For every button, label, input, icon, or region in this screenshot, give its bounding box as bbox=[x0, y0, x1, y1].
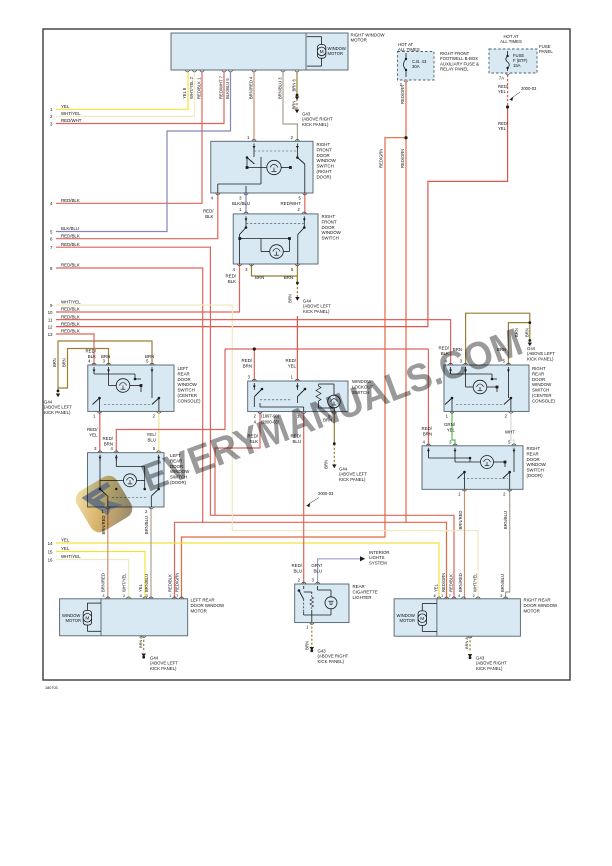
svg-text:SWITCH: SWITCH bbox=[532, 388, 549, 393]
svg-text:REAR: REAR bbox=[532, 371, 544, 376]
svg-text:KICK PANEL): KICK PANEL) bbox=[339, 477, 366, 482]
svg-text:15: 15 bbox=[48, 549, 53, 554]
svg-text:BRN: BRN bbox=[291, 101, 296, 110]
svg-text:RED/GRN: RED/GRN bbox=[400, 85, 405, 104]
svg-text:YEL: YEL bbox=[433, 583, 438, 592]
svg-text:KICK PANEL): KICK PANEL) bbox=[44, 410, 71, 415]
svg-text:RIGHT: RIGHT bbox=[532, 366, 546, 371]
svg-text:YEL 8: YEL 8 bbox=[182, 87, 187, 99]
svg-text:FRONT: FRONT bbox=[317, 147, 332, 152]
svg-text:YEL: YEL bbox=[89, 433, 98, 438]
svg-text:DOOR: DOOR bbox=[317, 153, 330, 158]
svg-text:WHT/YEL: WHT/YEL bbox=[61, 300, 81, 305]
svg-text:WINDOW: WINDOW bbox=[317, 158, 337, 163]
svg-text:SWITCH: SWITCH bbox=[178, 388, 195, 393]
svg-text:MOTOR: MOTOR bbox=[66, 618, 82, 623]
svg-text:REAR: REAR bbox=[353, 584, 365, 589]
svg-text:BRN/BLU: BRN/BLU bbox=[500, 574, 505, 592]
svg-text:RED/GRN: RED/GRN bbox=[400, 149, 405, 168]
svg-text:DOOR WINDOW: DOOR WINDOW bbox=[191, 603, 226, 608]
svg-text:RED/BLK: RED/BLK bbox=[61, 307, 80, 312]
svg-text:RED/WHT: RED/WHT bbox=[281, 201, 302, 206]
svg-text:WINDOW: WINDOW bbox=[178, 382, 198, 387]
svg-text:RED/WHT: RED/WHT bbox=[61, 118, 82, 123]
svg-text:RED/: RED/ bbox=[286, 358, 297, 363]
svg-text:CIGARETTE: CIGARETTE bbox=[353, 589, 378, 594]
svg-text:RED/BLK: RED/BLK bbox=[448, 574, 453, 592]
svg-text:10: 10 bbox=[48, 310, 53, 315]
svg-text:YEL: YEL bbox=[447, 428, 456, 433]
svg-text:KICK PANEL): KICK PANEL) bbox=[302, 122, 329, 127]
svg-text:BLK/BLU: BLK/BLU bbox=[61, 226, 79, 231]
svg-text:M: M bbox=[320, 49, 324, 55]
svg-text:BLU: BLU bbox=[313, 569, 322, 574]
svg-text:RED/BLK: RED/BLK bbox=[61, 242, 80, 247]
svg-text:BRN: BRN bbox=[62, 358, 67, 367]
svg-text:GRY/: GRY/ bbox=[311, 563, 322, 568]
svg-text:2000-03: 2000-03 bbox=[318, 491, 334, 496]
svg-text:DOOR: DOOR bbox=[322, 225, 335, 230]
svg-text:(CENTER: (CENTER bbox=[532, 393, 552, 398]
svg-text:BRN: BRN bbox=[423, 432, 432, 437]
svg-text:BLK/BLU 5: BLK/BLU 5 bbox=[225, 78, 230, 99]
svg-text:RIGHT: RIGHT bbox=[527, 446, 541, 451]
svg-text:RED/: RED/ bbox=[86, 349, 97, 354]
svg-text:GRN/: GRN/ bbox=[444, 422, 456, 427]
svg-text:BRN/RED 4: BRN/RED 4 bbox=[248, 76, 253, 99]
svg-text:7A: 7A bbox=[499, 76, 504, 81]
svg-text:FRONT: FRONT bbox=[322, 219, 337, 224]
svg-text:BRN 8: BRN 8 bbox=[464, 636, 469, 649]
svg-text:DOOR): DOOR) bbox=[317, 174, 332, 179]
svg-text:DOOR: DOOR bbox=[178, 377, 191, 382]
svg-text:RED/BLK: RED/BLK bbox=[61, 321, 80, 326]
svg-text:BLK: BLK bbox=[228, 279, 236, 284]
svg-text:KICK PANEL): KICK PANEL) bbox=[318, 659, 345, 664]
svg-text:RED/WHT 7: RED/WHT 7 bbox=[218, 75, 223, 99]
svg-text:BRN/BLU: BRN/BLU bbox=[503, 511, 508, 529]
svg-text:RIGHT REAR: RIGHT REAR bbox=[524, 598, 551, 603]
svg-text:SWITCH: SWITCH bbox=[527, 468, 544, 473]
svg-text:YEL: YEL bbox=[498, 89, 507, 94]
svg-text:LIGHTER: LIGHTER bbox=[353, 595, 372, 600]
svg-text:RED/GRN: RED/GRN bbox=[441, 573, 446, 592]
svg-text:RED/BLK: RED/BLK bbox=[61, 263, 80, 268]
svg-text:BRN/RED: BRN/RED bbox=[458, 573, 463, 592]
svg-text:REAR: REAR bbox=[178, 371, 190, 376]
svg-text:(RIGHT: (RIGHT bbox=[317, 169, 332, 174]
svg-text:RED/GRN: RED/GRN bbox=[174, 573, 179, 592]
svg-text:KICK PANEL): KICK PANEL) bbox=[150, 666, 177, 671]
svg-text:REAR: REAR bbox=[527, 451, 539, 456]
svg-text:YEL: YEL bbox=[138, 583, 143, 592]
svg-text:RED/BLK: RED/BLK bbox=[61, 314, 80, 319]
svg-text:RED/: RED/ bbox=[103, 436, 114, 441]
svg-text:KICK PANEL): KICK PANEL) bbox=[527, 356, 554, 361]
svg-text:M: M bbox=[85, 616, 89, 622]
svg-text:DOOR: DOOR bbox=[532, 377, 545, 382]
svg-text:DOOR WINDOW: DOOR WINDOW bbox=[524, 603, 559, 608]
svg-text:RIGHT: RIGHT bbox=[322, 214, 336, 219]
svg-text:SWITCH: SWITCH bbox=[322, 236, 339, 241]
svg-text:RED/: RED/ bbox=[422, 426, 433, 431]
svg-text:BRN: BRN bbox=[255, 275, 264, 280]
svg-text:16: 16 bbox=[48, 557, 53, 562]
svg-text:WINDOW: WINDOW bbox=[322, 230, 342, 235]
svg-text:BRN: BRN bbox=[284, 275, 293, 280]
svg-text:RED/BLK: RED/BLK bbox=[167, 574, 172, 592]
svg-text:WHT: WHT bbox=[505, 430, 515, 435]
svg-text:WHT/YEL: WHT/YEL bbox=[472, 573, 477, 592]
svg-text:KICK PANEL): KICK PANEL) bbox=[303, 309, 330, 314]
svg-text:13: 13 bbox=[48, 332, 53, 337]
svg-text:M: M bbox=[420, 616, 424, 622]
svg-text:RED/: RED/ bbox=[226, 274, 237, 279]
svg-text:RED/BLK: RED/BLK bbox=[61, 233, 80, 238]
svg-text:RED/BLK 1: RED/BLK 1 bbox=[196, 77, 201, 99]
svg-text:RED/: RED/ bbox=[87, 427, 98, 432]
svg-text:RED/BLK: RED/BLK bbox=[61, 198, 80, 203]
svg-text:YEL/: YEL/ bbox=[146, 432, 156, 437]
svg-text:2000-03: 2000-03 bbox=[521, 86, 537, 91]
svg-text:WHT/YEL: WHT/YEL bbox=[61, 111, 81, 116]
svg-text:WINDOW: WINDOW bbox=[527, 462, 547, 467]
svg-text:WHT/YEL: WHT/YEL bbox=[61, 554, 81, 559]
svg-text:11: 11 bbox=[48, 317, 53, 322]
svg-text:15A: 15A bbox=[513, 63, 521, 68]
svg-text:RED/: RED/ bbox=[292, 563, 303, 568]
svg-text:YEL: YEL bbox=[288, 364, 297, 369]
svg-text:BLU: BLU bbox=[293, 569, 302, 574]
svg-text:DOOR: DOOR bbox=[527, 457, 540, 462]
svg-text:BRN 6: BRN 6 bbox=[291, 78, 296, 91]
svg-text:BRN: BRN bbox=[305, 641, 310, 650]
svg-text:YEL: YEL bbox=[61, 104, 70, 109]
svg-text:CONSOLE): CONSOLE) bbox=[178, 398, 201, 403]
svg-text:CONSOLE): CONSOLE) bbox=[532, 398, 555, 403]
svg-text:BLK/BLU: BLK/BLU bbox=[232, 201, 250, 206]
svg-text:BRN: BRN bbox=[243, 364, 252, 369]
svg-text:14: 14 bbox=[48, 541, 53, 546]
svg-text:12: 12 bbox=[48, 324, 53, 329]
svg-text:WHT/YEL: WHT/YEL bbox=[121, 573, 126, 592]
svg-text:SYSTEM: SYSTEM bbox=[369, 560, 387, 565]
svg-text:BLK: BLK bbox=[205, 214, 213, 219]
svg-text:BRN 8: BRN 8 bbox=[138, 635, 143, 648]
svg-text:LEFT: LEFT bbox=[178, 366, 189, 371]
svg-text:MOTOR: MOTOR bbox=[351, 38, 367, 43]
svg-text:YEL: YEL bbox=[498, 126, 507, 131]
svg-text:BRN: BRN bbox=[52, 358, 57, 367]
svg-text:BRN/BLU: BRN/BLU bbox=[144, 516, 149, 534]
svg-text:BLK: BLK bbox=[88, 354, 96, 359]
svg-text:BRN/RED: BRN/RED bbox=[458, 511, 463, 530]
svg-text:YEL: YEL bbox=[61, 546, 70, 551]
svg-text:RIGHT: RIGHT bbox=[317, 142, 331, 147]
svg-text:SWITCH: SWITCH bbox=[317, 164, 334, 169]
svg-text:MOTOR: MOTOR bbox=[191, 608, 207, 613]
svg-text:BRN: BRN bbox=[524, 328, 529, 337]
svg-text:30A: 30A bbox=[412, 64, 420, 69]
svg-text:YEL: YEL bbox=[61, 538, 70, 543]
svg-text:BLU: BLU bbox=[147, 438, 156, 443]
svg-text:BRN: BRN bbox=[324, 460, 329, 469]
svg-text:BRN: BRN bbox=[145, 354, 154, 359]
svg-text:BRN: BRN bbox=[288, 294, 293, 303]
svg-text:BRN/BLU 3: BRN/BLU 3 bbox=[277, 77, 282, 99]
svg-text:180703: 180703 bbox=[45, 686, 58, 690]
svg-text:MOTOR: MOTOR bbox=[400, 618, 416, 623]
svg-text:MOTOR: MOTOR bbox=[524, 608, 540, 613]
svg-text:BRN/BLU: BRN/BLU bbox=[144, 574, 149, 592]
svg-text:LEFT REAR: LEFT REAR bbox=[191, 598, 215, 603]
svg-text:RED/: RED/ bbox=[242, 358, 253, 363]
svg-text:RED/GRN: RED/GRN bbox=[379, 149, 384, 168]
svg-text:RED/: RED/ bbox=[203, 209, 214, 214]
svg-text:WHT/YEL 2: WHT/YEL 2 bbox=[189, 76, 194, 99]
svg-text:RELAY PANEL: RELAY PANEL bbox=[440, 67, 469, 72]
svg-text:RED/BLK: RED/BLK bbox=[61, 329, 80, 334]
svg-text:BRN: BRN bbox=[101, 354, 110, 359]
svg-text:ALL TIMES: ALL TIMES bbox=[500, 39, 522, 44]
svg-text:(CENTER: (CENTER bbox=[178, 393, 198, 398]
svg-text:BRN/RED: BRN/RED bbox=[101, 573, 106, 592]
svg-text:MOTOR: MOTOR bbox=[328, 51, 344, 56]
svg-text:PANEL: PANEL bbox=[539, 49, 553, 54]
svg-text:KICK PANEL): KICK PANEL) bbox=[476, 666, 503, 671]
svg-text:WINDOW: WINDOW bbox=[532, 382, 552, 387]
svg-text:(DOOR): (DOOR) bbox=[527, 473, 544, 478]
